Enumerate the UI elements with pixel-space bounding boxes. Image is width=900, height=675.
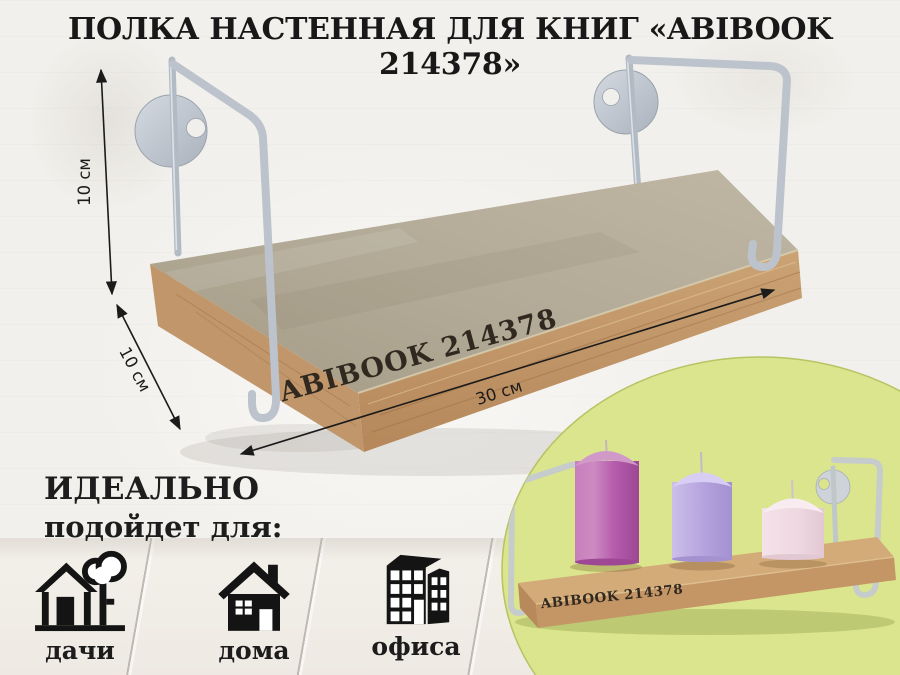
product-poster: ПОЛКА НАСТЕННАЯ ДЛЯ КНИГ «ABIBOOK 214378… <box>0 0 900 675</box>
inset-photo: ABIBOOK 214378 <box>0 0 900 675</box>
